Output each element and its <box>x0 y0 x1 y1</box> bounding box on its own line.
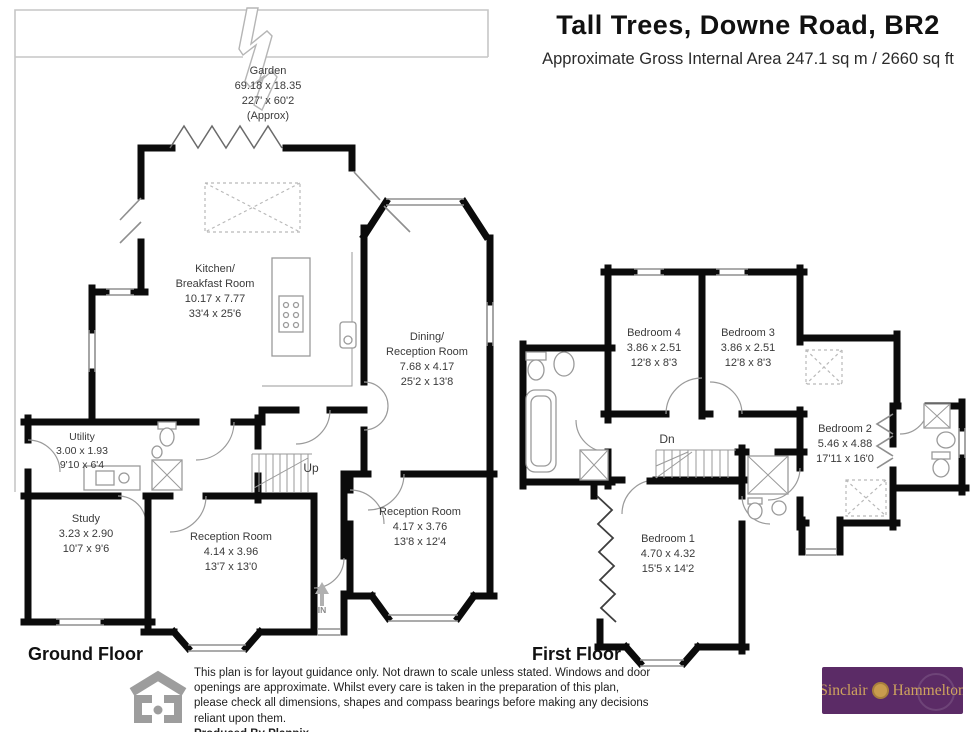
room-dim-imperial: 25'2 x 13'8 <box>357 375 497 390</box>
stairs-up-label: Up <box>294 461 328 475</box>
room-dim-imperial: 12'8 x 8'3 <box>688 356 808 371</box>
first-floor-stairs <box>656 450 736 478</box>
room-dim-metric: 3.00 x 1.93 <box>27 444 137 458</box>
room-name: Dining/ Reception Room <box>357 330 497 360</box>
room-label-reception-1: Reception Room 4.14 x 3.96 13'7 x 13'0 <box>161 530 301 575</box>
room-label-study: Study 3.23 x 2.90 10'7 x 9'6 <box>26 512 146 557</box>
room-dim-metric: 7.68 x 4.17 <box>357 360 497 375</box>
room-label-bedroom-2: Bedroom 2 5.46 x 4.88 17'11 x 16'0 <box>785 422 905 467</box>
floorplan-page: Tall Trees, Downe Road, BR2 Approximate … <box>0 0 980 732</box>
disclaimer-block: This plan is for layout guidance only. N… <box>194 666 656 732</box>
room-label-bedroom-3: Bedroom 3 3.86 x 2.51 12'8 x 8'3 <box>688 326 808 371</box>
disclaimer-text: This plan is for layout guidance only. N… <box>194 667 650 725</box>
room-label-utility: Utility 3.00 x 1.93 9'10 x 6'4 <box>27 430 137 472</box>
room-name: Reception Room <box>161 530 301 545</box>
room-dim-metric: 5.46 x 4.88 <box>785 437 905 452</box>
room-name: Garden <box>198 64 338 79</box>
room-dim-imperial: 9'10 x 6'4 <box>27 458 137 472</box>
agent-logo: Sinclair Hammelton <box>822 667 963 714</box>
first-floor-label: First Floor <box>532 644 621 665</box>
room-dim-imperial: 33'4 x 25'6 <box>145 307 285 322</box>
room-label-dining: Dining/ Reception Room 7.68 x 4.17 25'2 … <box>357 330 497 390</box>
room-dim-metric: 10.17 x 7.77 <box>145 292 285 307</box>
produced-by-text: Produced By Planpix <box>194 727 656 732</box>
room-dim-imperial: 227' x 60'2 <box>198 94 338 109</box>
room-name: Bedroom 2 <box>785 422 905 437</box>
room-dim-imperial: 17'11 x 16'0 <box>785 452 905 467</box>
room-dim-imperial: 13'7 x 13'0 <box>161 560 301 575</box>
room-label-bedroom-1: Bedroom 1 4.70 x 4.32 15'5 x 14'2 <box>608 532 728 577</box>
planpix-house-icon <box>128 668 188 724</box>
room-name: Reception Room <box>350 505 490 520</box>
room-name: Study <box>26 512 146 527</box>
stairs-down-label: Dn <box>650 432 684 446</box>
room-dim-metric: 3.86 x 2.51 <box>688 341 808 356</box>
room-dim-imperial: 10'7 x 9'6 <box>26 542 146 557</box>
entrance-in-label: IN <box>306 605 338 615</box>
room-dim-metric: 4.17 x 3.76 <box>350 520 490 535</box>
page-title: Tall Trees, Downe Road, BR2 <box>520 10 976 41</box>
page-subtitle: Approximate Gross Internal Area 247.1 sq… <box>520 50 976 69</box>
room-name: Kitchen/ Breakfast Room <box>145 262 285 292</box>
room-dim-imperial: 15'5 x 14'2 <box>608 562 728 577</box>
room-label-kitchen: Kitchen/ Breakfast Room 10.17 x 7.77 33'… <box>145 262 285 322</box>
agent-logo-watermark-icon <box>917 673 955 711</box>
room-dim-metric: 4.14 x 3.96 <box>161 545 301 560</box>
room-name: Bedroom 3 <box>688 326 808 341</box>
agent-logo-emblem-icon <box>872 682 889 699</box>
room-name: Bedroom 1 <box>608 532 728 547</box>
room-label-reception-2: Reception Room 4.17 x 3.76 13'8 x 12'4 <box>350 505 490 550</box>
room-name: Utility <box>27 430 137 444</box>
room-dim-metric: 69.18 x 18.35 <box>198 79 338 94</box>
room-dim-metric: 4.70 x 4.32 <box>608 547 728 562</box>
agent-logo-name-left: Sinclair <box>822 682 868 700</box>
room-dim-imperial: 13'8 x 12'4 <box>350 535 490 550</box>
room-dim-note: (Approx) <box>198 109 338 124</box>
room-dim-metric: 3.23 x 2.90 <box>26 527 146 542</box>
room-label-garden: Garden 69.18 x 18.35 227' x 60'2 (Approx… <box>198 64 338 124</box>
ground-floor-label: Ground Floor <box>28 644 143 665</box>
